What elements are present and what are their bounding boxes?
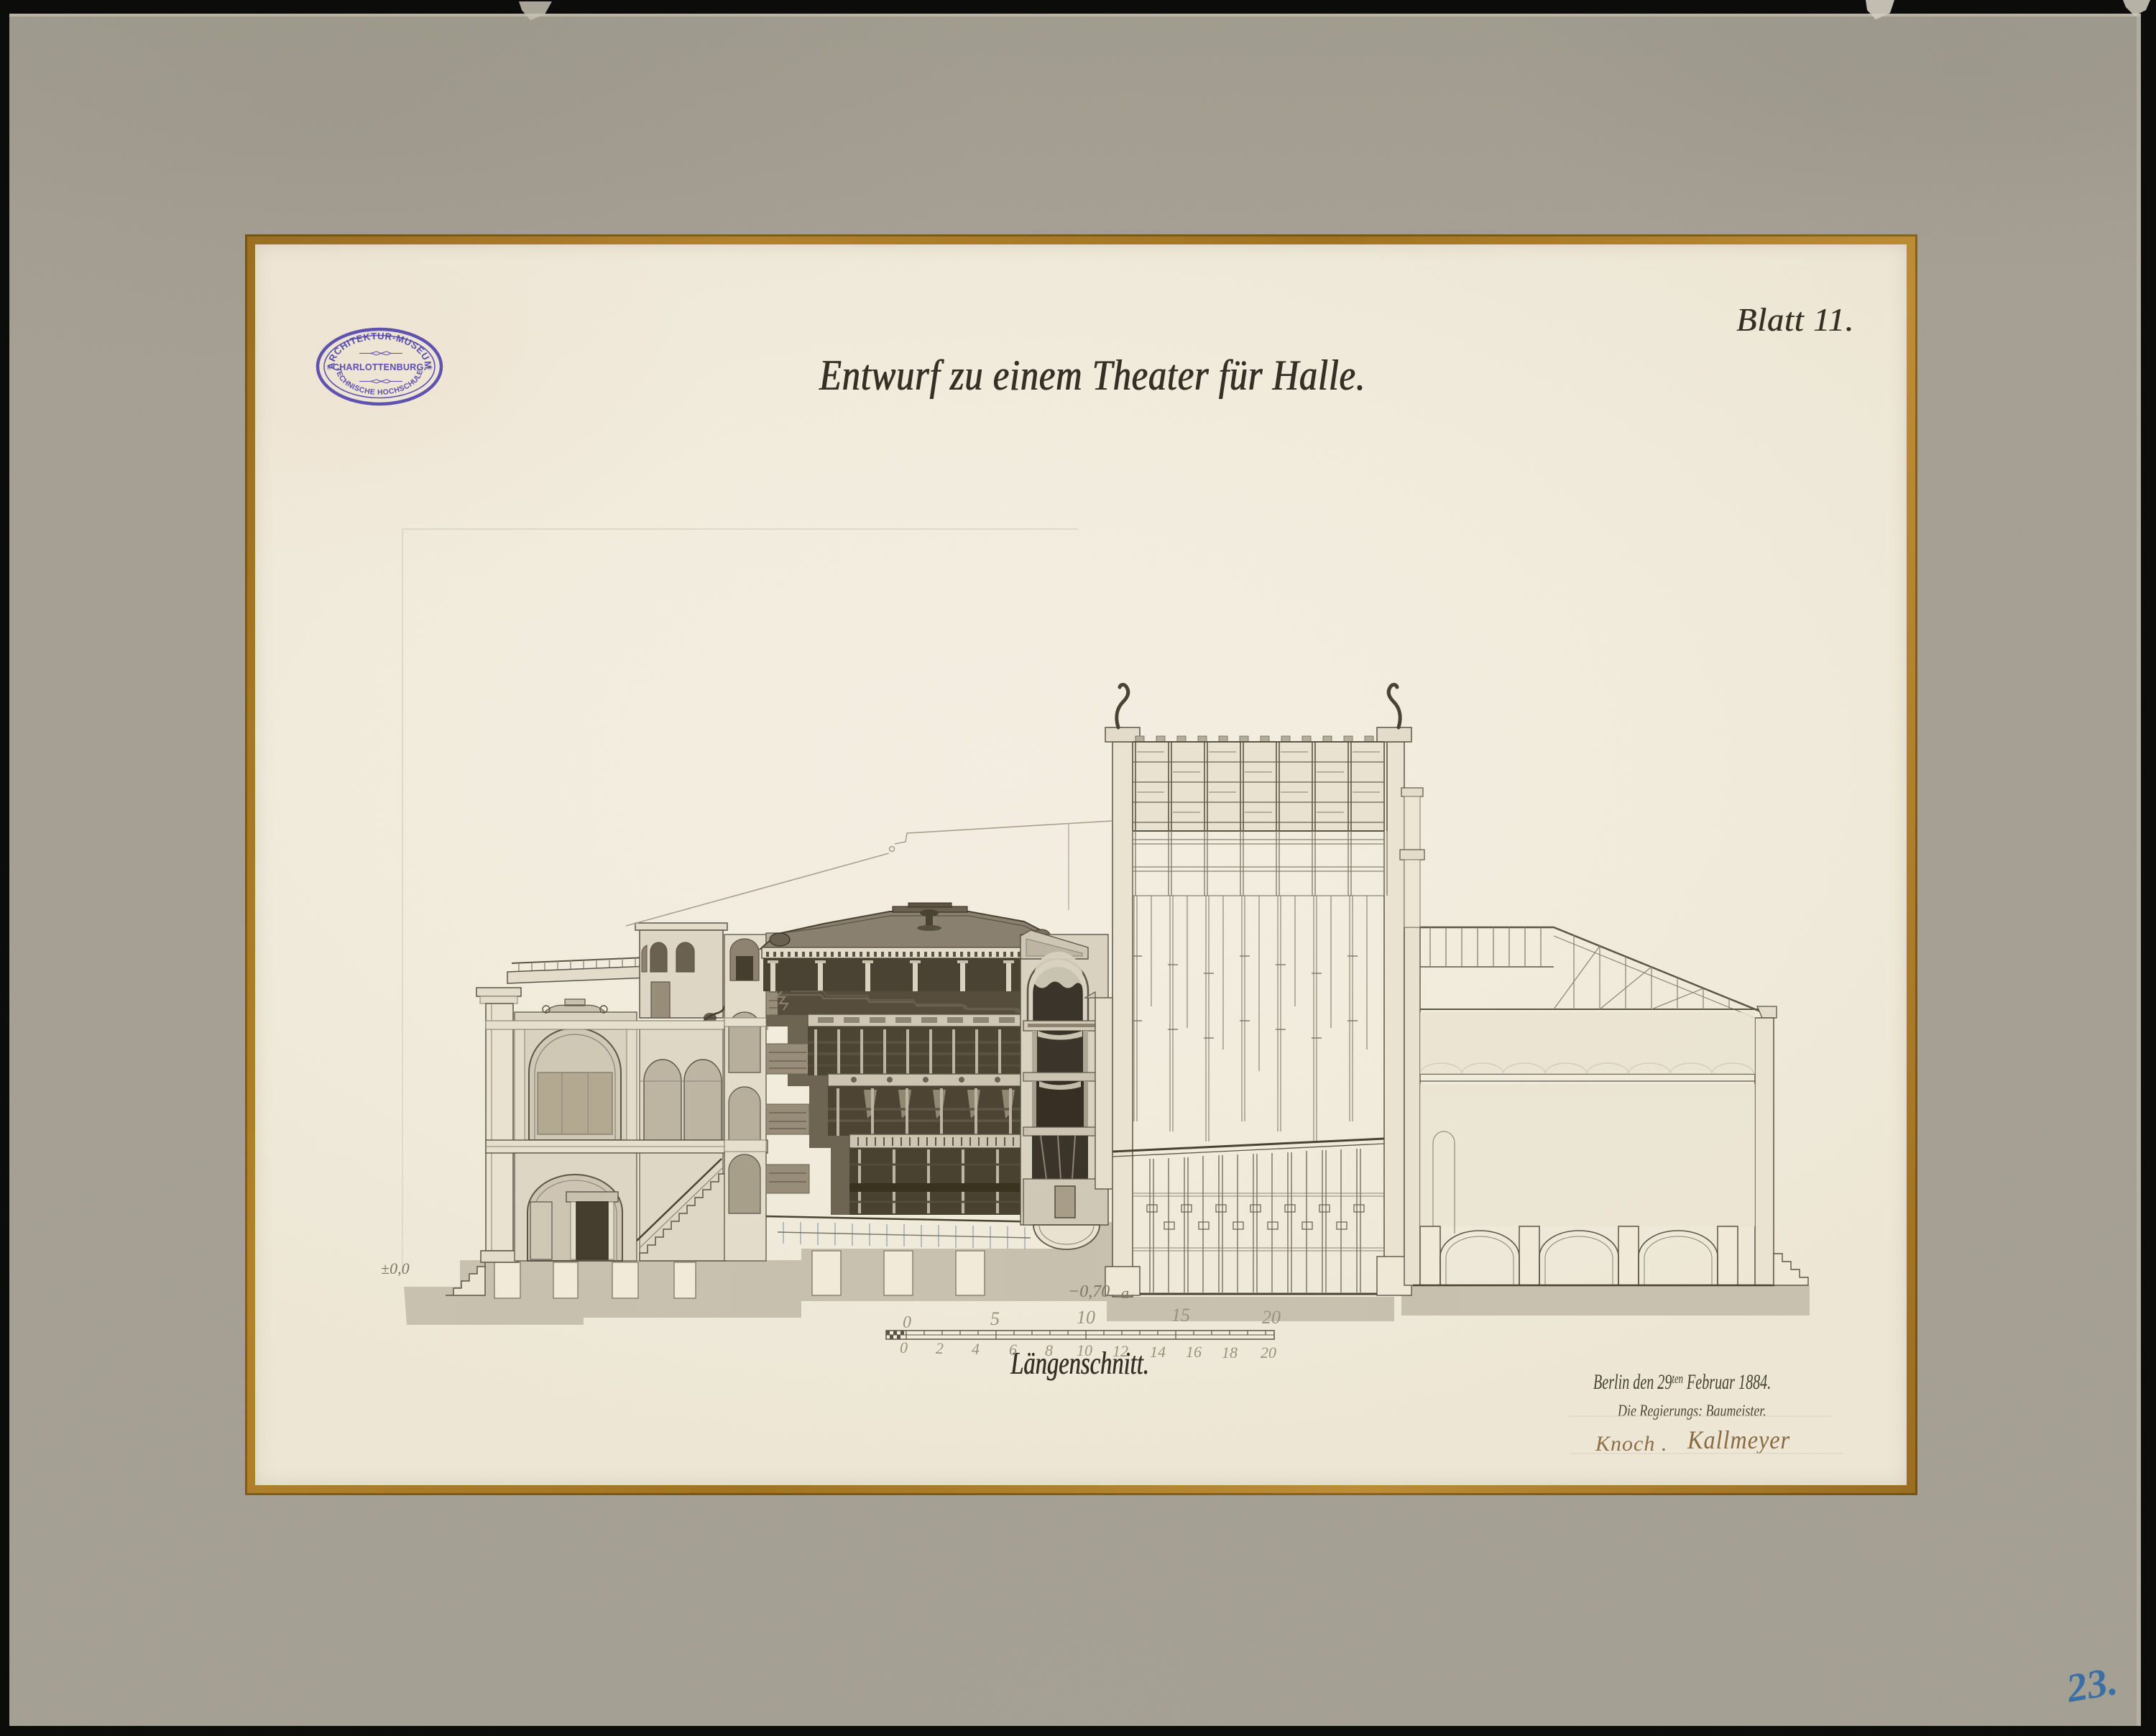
svg-text:8: 8 bbox=[1045, 1341, 1053, 1359]
svg-text:−0,70: −0,70 bbox=[1068, 1282, 1110, 1301]
svg-text:12: 12 bbox=[1112, 1342, 1128, 1360]
svg-text:6: 6 bbox=[1009, 1341, 1017, 1359]
svg-text:14: 14 bbox=[1150, 1343, 1166, 1361]
svg-text:18: 18 bbox=[1222, 1344, 1238, 1361]
svg-text:20: 20 bbox=[1262, 1307, 1281, 1328]
svg-text:0: 0 bbox=[900, 1338, 908, 1356]
svg-text:20: 20 bbox=[1261, 1344, 1276, 1361]
svg-text:2: 2 bbox=[936, 1339, 944, 1357]
svg-text:15: 15 bbox=[1171, 1305, 1190, 1326]
svg-text:±0,0: ±0,0 bbox=[381, 1259, 410, 1277]
svg-text:10: 10 bbox=[1077, 1307, 1095, 1328]
svg-text:4: 4 bbox=[972, 1340, 980, 1358]
svg-text:5: 5 bbox=[990, 1308, 1000, 1329]
svg-text:10: 10 bbox=[1077, 1341, 1092, 1359]
svg-text:0: 0 bbox=[903, 1313, 911, 1332]
svg-text:a: a bbox=[1121, 1284, 1129, 1302]
svg-text:16: 16 bbox=[1186, 1343, 1202, 1361]
